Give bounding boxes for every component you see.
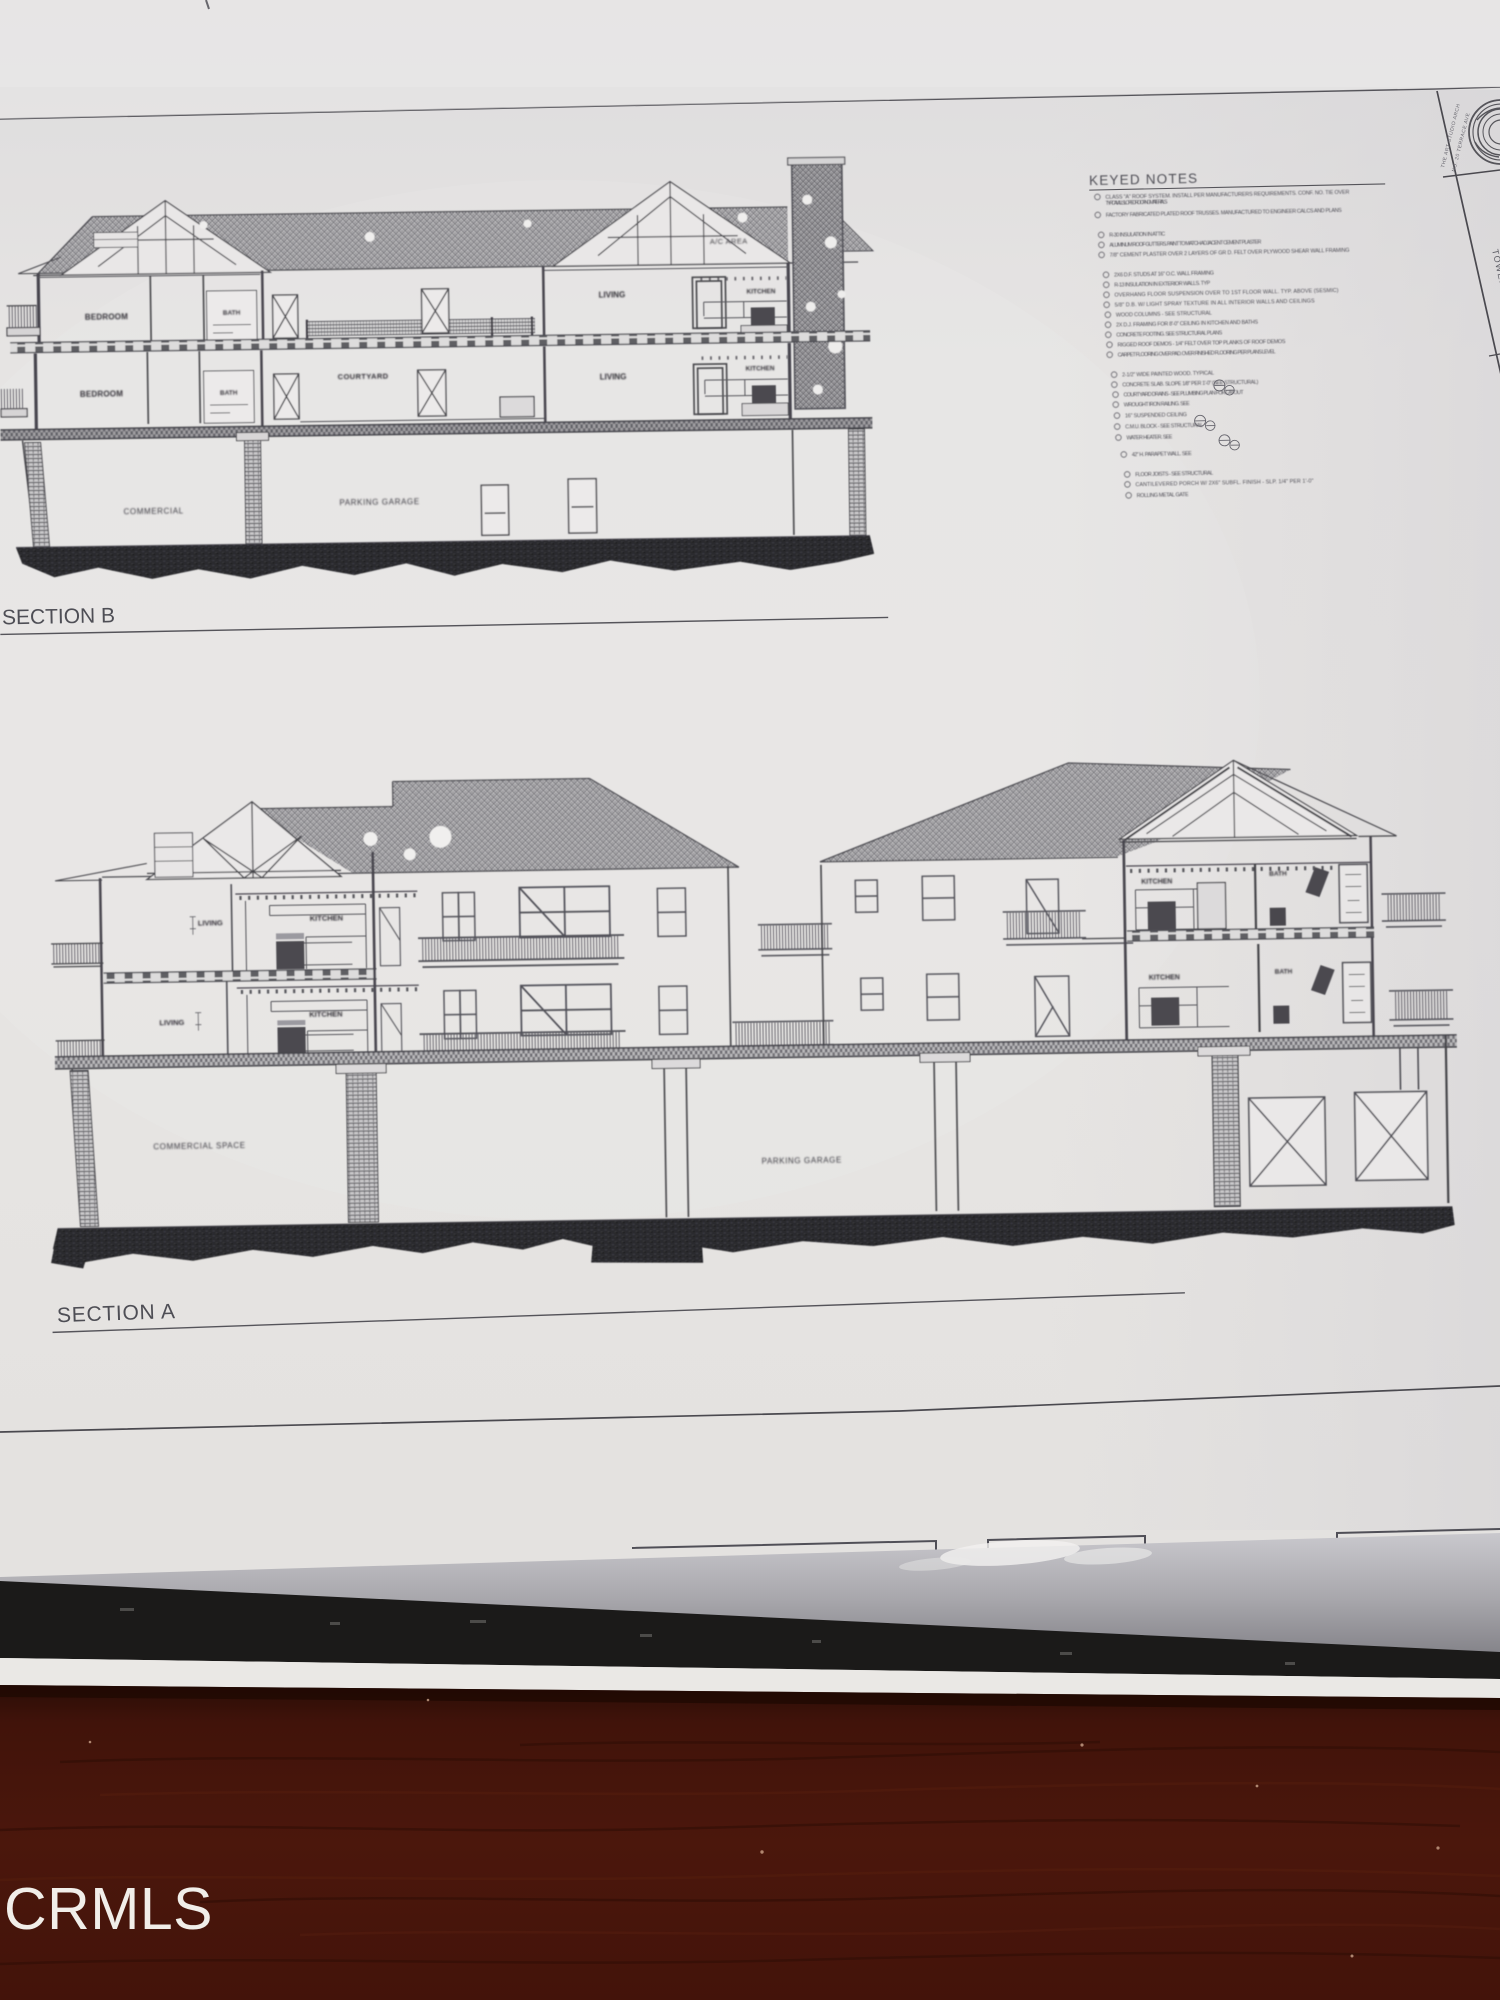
svg-text:SECTION B: SECTION B	[2, 604, 115, 629]
svg-text:COURTYARD: COURTYARD	[338, 372, 389, 382]
svg-text:BATH: BATH	[220, 390, 238, 397]
svg-text:BEDROOM: BEDROOM	[80, 389, 123, 399]
svg-text:KITCHEN: KITCHEN	[746, 365, 775, 372]
svg-text:KEYED NOTES: KEYED NOTES	[1089, 171, 1199, 188]
svg-text:A/C AREA: A/C AREA	[710, 237, 748, 247]
svg-text:BATH: BATH	[1275, 968, 1293, 975]
svg-text:LIVING: LIVING	[198, 918, 223, 927]
svg-text:BEDROOM: BEDROOM	[85, 312, 128, 322]
svg-text:COMMERCIAL SPACE: COMMERCIAL SPACE	[153, 1141, 245, 1151]
svg-text:CRMLS: CRMLS	[4, 1876, 213, 1942]
svg-text:SECTION A: SECTION A	[57, 1300, 176, 1327]
svg-text:LIVING: LIVING	[600, 372, 627, 381]
svg-text:ROLLING METAL GATE: ROLLING METAL GATE	[1137, 492, 1190, 499]
svg-text:WATER HEATER. SEE: WATER HEATER. SEE	[1126, 434, 1173, 441]
svg-text:R-30 INSULATION IN ATTIC: R-30 INSULATION IN ATTIC	[1109, 232, 1165, 239]
svg-text:BATH: BATH	[223, 310, 241, 317]
svg-text:LIVING: LIVING	[598, 290, 625, 299]
svg-text:KITCHEN: KITCHEN	[1149, 974, 1180, 981]
svg-text:LIVING: LIVING	[159, 1018, 184, 1027]
svg-text:PARKING GARAGE: PARKING GARAGE	[762, 1156, 842, 1166]
svg-text:PARKING GARAGE: PARKING GARAGE	[339, 497, 419, 507]
svg-text:KITCHEN: KITCHEN	[746, 288, 775, 295]
svg-text:KITCHEN: KITCHEN	[1141, 878, 1172, 885]
svg-text:42" H. PARAPET WALL. SEE: 42" H. PARAPET WALL. SEE	[1132, 451, 1193, 458]
svg-text:COMMERCIAL: COMMERCIAL	[123, 506, 183, 516]
svg-text:BATH: BATH	[1269, 871, 1287, 878]
